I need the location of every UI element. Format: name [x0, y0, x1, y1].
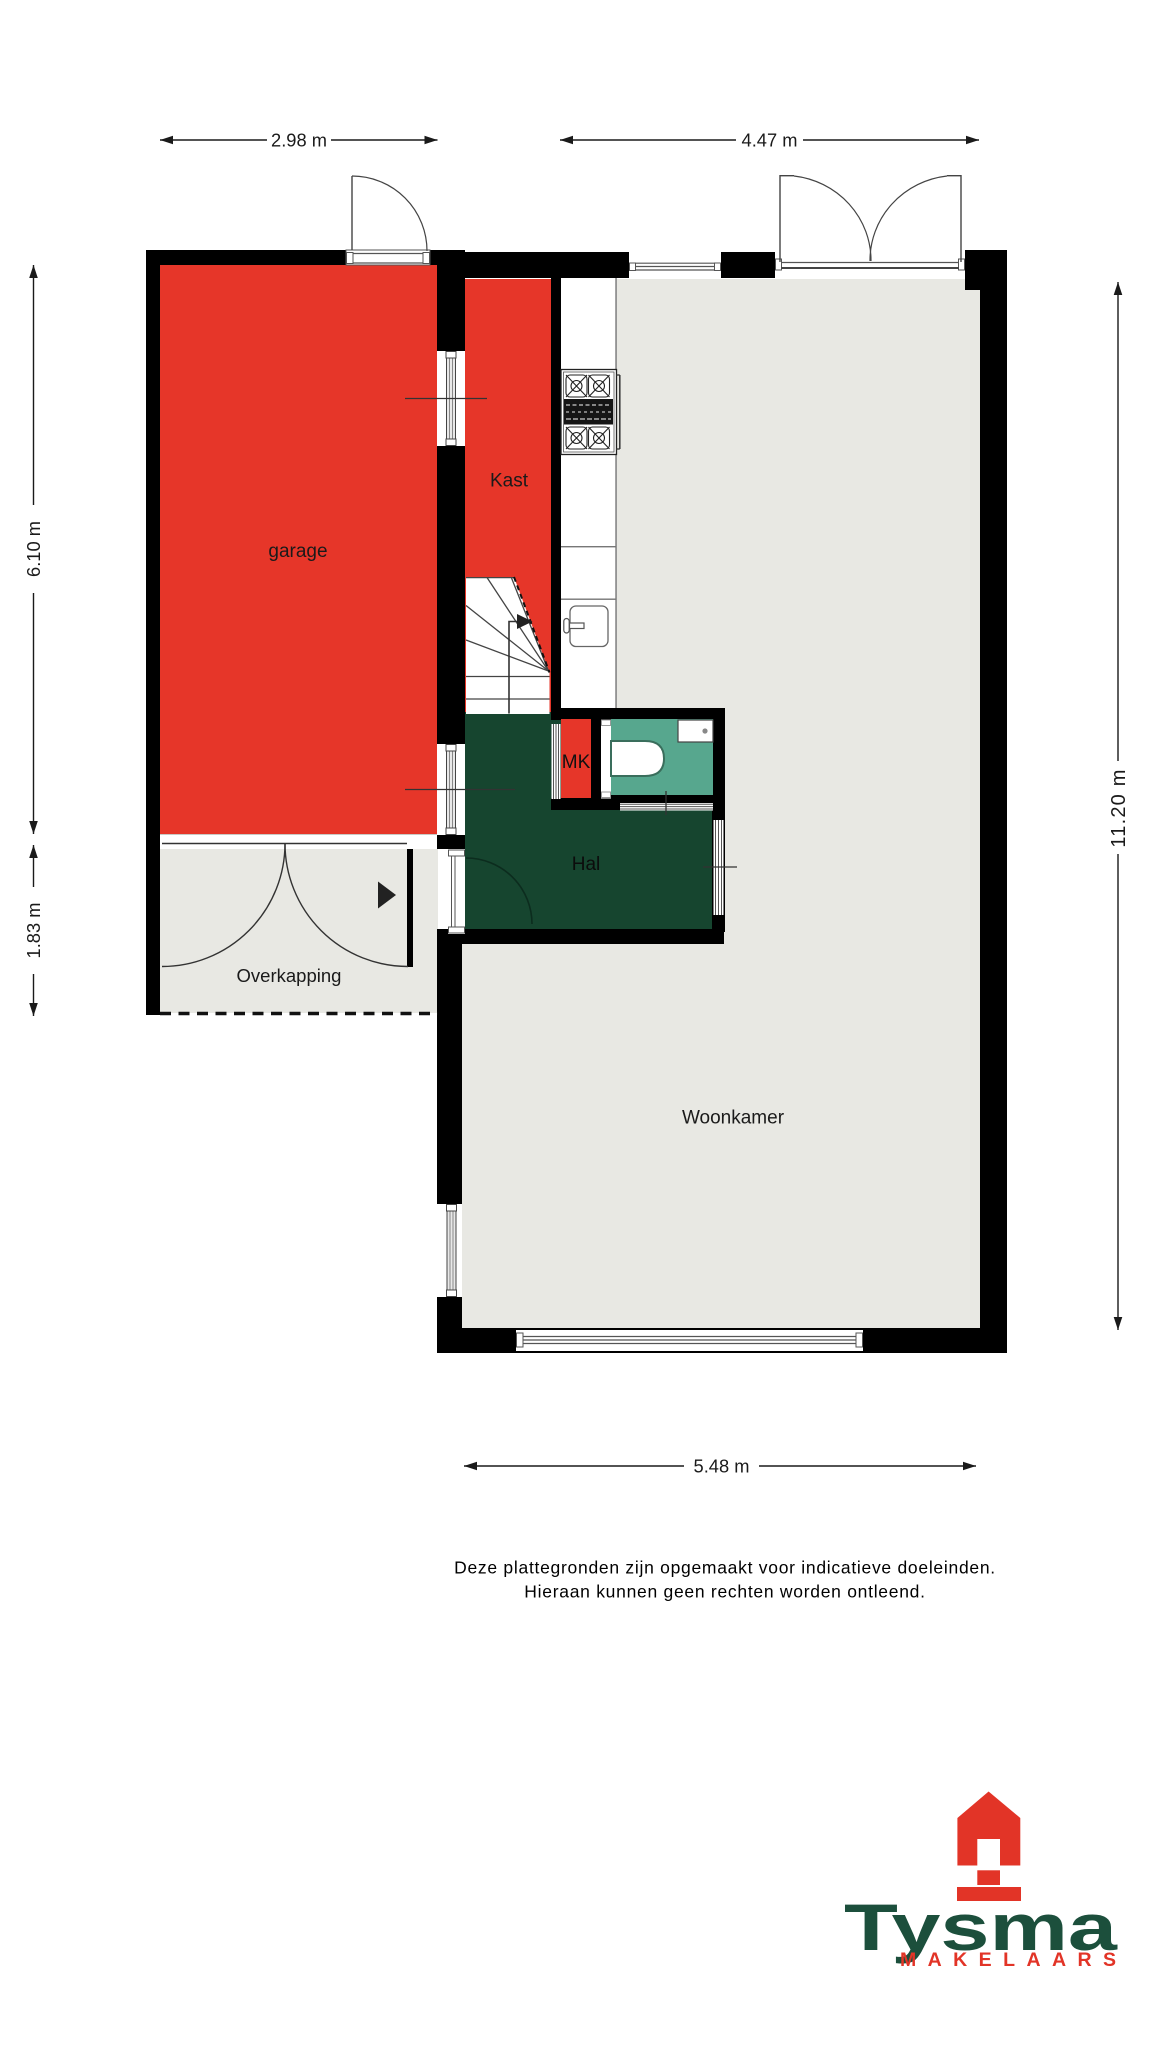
svg-text:4.47 m: 4.47 m: [742, 130, 798, 151]
svg-text:Overkapping: Overkapping: [237, 965, 342, 986]
svg-text:Woonkamer: Woonkamer: [682, 1108, 785, 1129]
svg-text:1.83 m: 1.83 m: [23, 903, 44, 959]
svg-text:Hal: Hal: [572, 854, 601, 875]
svg-text:garage: garage: [268, 541, 327, 562]
svg-text:6.10 m: 6.10 m: [23, 521, 44, 577]
svg-text:Hieraan kunnen geen rechten wo: Hieraan kunnen geen rechten worden ontle…: [524, 1582, 925, 1602]
svg-text:Kast: Kast: [490, 471, 529, 492]
svg-text:5.48 m: 5.48 m: [694, 1456, 750, 1477]
svg-text:MK: MK: [562, 752, 591, 773]
svg-text:2.98 m: 2.98 m: [271, 130, 327, 151]
svg-text:MAKELAARS: MAKELAARS: [900, 1949, 1116, 1971]
svg-text:11.20 m: 11.20 m: [1108, 768, 1130, 847]
svg-text:Deze plattegronden zijn opgema: Deze plattegronden zijn opgemaakt voor i…: [454, 1558, 996, 1578]
